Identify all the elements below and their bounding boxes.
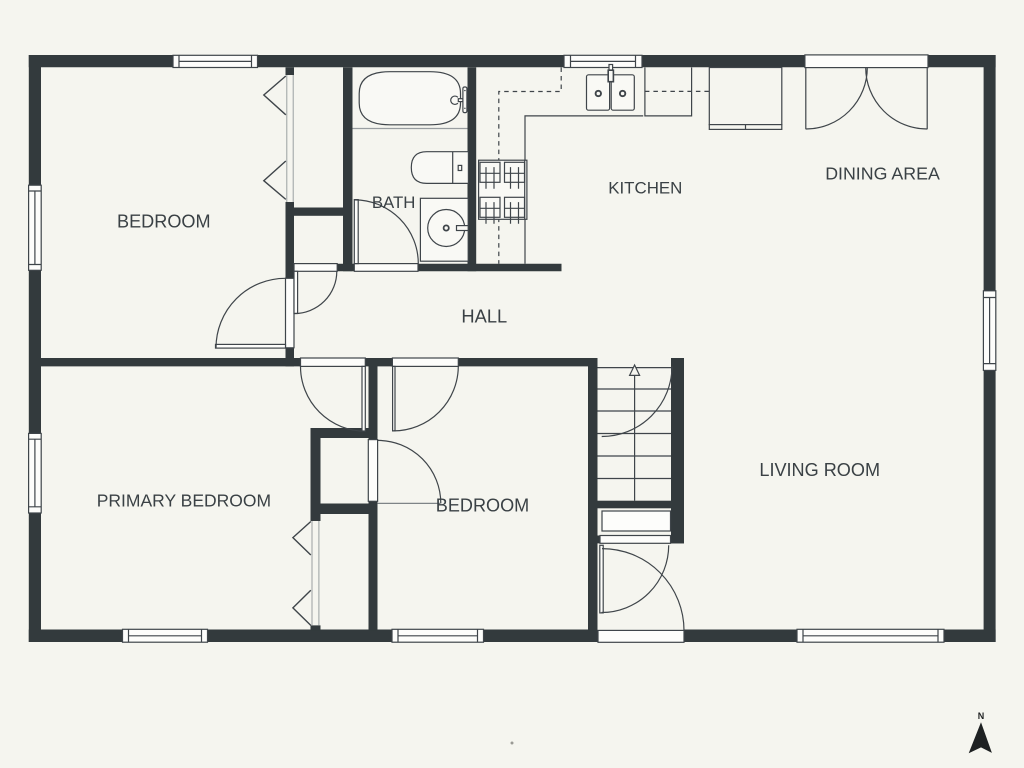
- svg-text:HALL: HALL: [461, 305, 507, 326]
- svg-text:BATH: BATH: [372, 193, 416, 212]
- svg-text:PRIMARY BEDROOM: PRIMARY BEDROOM: [97, 490, 271, 510]
- svg-text:N: N: [978, 711, 985, 721]
- svg-text:LIVING ROOM: LIVING ROOM: [759, 460, 880, 480]
- svg-text:KITCHEN: KITCHEN: [608, 179, 682, 198]
- svg-text:DINING AREA: DINING AREA: [825, 163, 940, 183]
- svg-text:BEDROOM: BEDROOM: [436, 495, 530, 515]
- svg-text:BEDROOM: BEDROOM: [117, 211, 211, 231]
